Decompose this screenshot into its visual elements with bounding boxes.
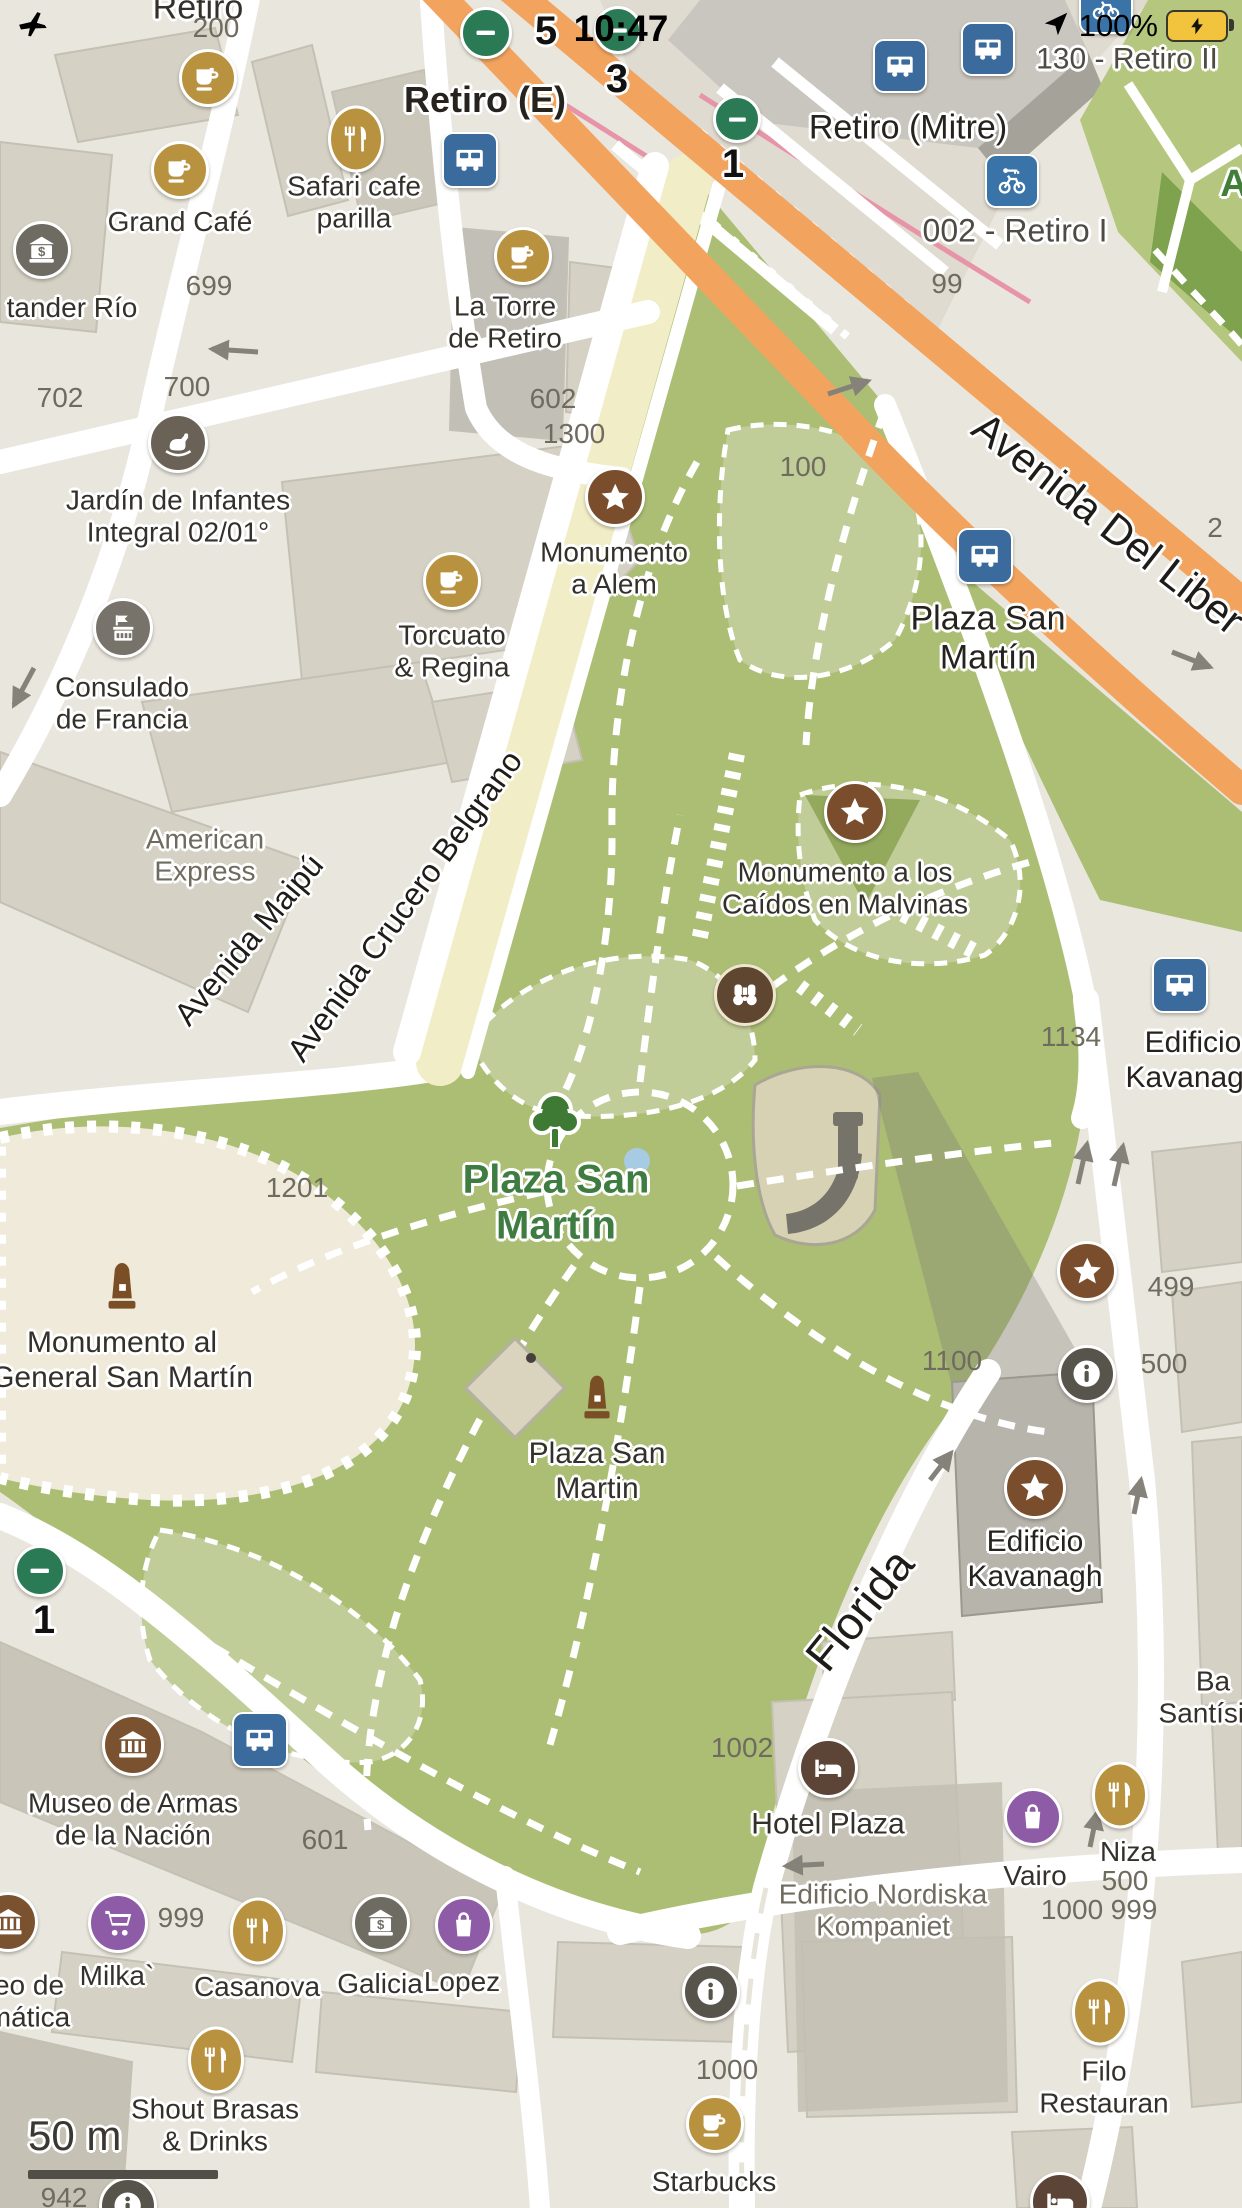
poi-label-monumento-alem[interactable]: Monumentoa Alem: [540, 537, 688, 602]
monument-icon-general-san-martin[interactable]: [91, 1257, 153, 1319]
metro-line-number-1: 1: [722, 141, 744, 187]
housenumber: 602: [530, 383, 577, 415]
housenumber: 2: [1207, 512, 1223, 544]
info-icon[interactable]: [1058, 1345, 1116, 1403]
monument-icon-plaza[interactable]: [568, 1370, 626, 1428]
scale-ruler: 50 m: [28, 2112, 228, 2179]
cafe-icon-torcuato[interactable]: [423, 552, 481, 610]
poi-label-casanova[interactable]: Casanova: [194, 1971, 320, 2003]
cafe-icon-starbucks[interactable]: [686, 2095, 744, 2153]
battery-percent: 100%: [1079, 8, 1158, 44]
shop-bag-icon-vairo[interactable]: [1004, 1788, 1062, 1846]
building-label-nordiska: Edificio NordiskaKompaniet: [779, 1879, 988, 1944]
cafe-icon[interactable]: [179, 49, 237, 107]
info-icon-cut[interactable]: [99, 2177, 157, 2208]
housenumber: 1000: [1041, 1894, 1103, 1926]
hotel-icon-plaza[interactable]: [798, 1738, 858, 1798]
poi-label-consulado[interactable]: Consuladode Francia: [55, 672, 189, 737]
poi-label-filo[interactable]: FiloRestauran: [1039, 2056, 1168, 2121]
bank-icon-santander[interactable]: [13, 221, 71, 279]
bus-stop-icon[interactable]: [232, 1712, 288, 1768]
scale-bar-line: [28, 2170, 218, 2179]
housenumber: 702: [37, 382, 84, 414]
street-label-crucero-belgrano: Avenida Crucero Belgrano: [280, 744, 530, 1069]
housenumber: 1002: [711, 1732, 773, 1764]
museum-icon-cut[interactable]: [0, 1892, 38, 1952]
map-app: $ Retiro2005311Retiro (E)Retiro (Mitre)1…: [0, 0, 1242, 2208]
bike-share-icon-retiro1[interactable]: [985, 154, 1039, 208]
sight-star-icon-kavanagh[interactable]: [1004, 1457, 1066, 1519]
housenumber: 500: [1141, 1348, 1188, 1380]
map-overlay: Retiro2005311Retiro (E)Retiro (Mitre)130…: [0, 0, 1242, 2208]
status-bar: 10:47 100%: [0, 0, 1242, 46]
poi-label-milka[interactable]: Milka`: [80, 1960, 155, 1992]
restaurant-icon-shout[interactable]: [188, 2027, 244, 2094]
station-label-retiro-e[interactable]: Retiro (E): [404, 79, 566, 121]
housenumber: 499: [1148, 1271, 1195, 1303]
bank-icon-galicia[interactable]: [352, 1894, 410, 1952]
poi-label-museo-cut[interactable]: eo demática: [0, 1970, 70, 2035]
housenumber: 601: [302, 1824, 349, 1856]
poi-label-hotel-plaza[interactable]: Hotel Plaza: [751, 1808, 904, 1843]
kindergarten-icon[interactable]: [148, 413, 208, 473]
metro-station-icon-line1[interactable]: [713, 95, 761, 143]
poi-label-kavanagh[interactable]: EdificioKavanagh: [967, 1525, 1102, 1595]
poi-label-safari-cafe[interactable]: Safari cafeparilla: [287, 171, 421, 236]
housenumber: 942: [41, 2182, 88, 2208]
bus-stop-icon[interactable]: [442, 132, 498, 188]
poi-label-malvinas[interactable]: Monumento a losCaídos en Malvinas: [722, 857, 968, 922]
bike-station-label[interactable]: 002 - Retiro I: [923, 212, 1108, 249]
housenumber: 1134: [1041, 1021, 1101, 1053]
housenumber: 500: [1102, 1865, 1149, 1897]
poi-label-santander[interactable]: tander Río: [7, 292, 138, 324]
housenumber: 999: [158, 1902, 205, 1934]
housenumber: 1300: [543, 418, 605, 450]
shop-cart-icon-milka[interactable]: [88, 1893, 148, 1953]
museum-icon-armas[interactable]: [102, 1714, 164, 1776]
housenumber: 1100: [922, 1345, 982, 1377]
poi-label-monumento-gsm[interactable]: Monumento alGeneral San Martín: [0, 1326, 253, 1396]
poi-label-galicia[interactable]: Galicia: [337, 1968, 423, 2000]
restaurant-icon-safari[interactable]: [328, 106, 384, 173]
metro-line-number-3: 3: [606, 56, 628, 102]
metro-station-icon-line1b[interactable]: [14, 1545, 66, 1597]
location-arrow-icon: [1041, 9, 1071, 44]
poi-label-museo-armas[interactable]: Museo de Armasde la Nación: [28, 1788, 238, 1853]
cafe-icon-grand-cafe[interactable]: [151, 141, 209, 199]
housenumber: 99: [931, 268, 962, 300]
poi-label-torcuato-regina[interactable]: Torcuato& Regina: [394, 620, 509, 685]
consulate-icon[interactable]: [93, 598, 153, 658]
poi-label-basilica-cut[interactable]: BaSantísim: [1159, 1666, 1242, 1731]
bus-stop-icon[interactable]: [1152, 957, 1208, 1013]
building-label-american-express: AmericanExpress: [146, 824, 264, 889]
poi-label-niza[interactable]: Niza: [1100, 1836, 1156, 1868]
battery-charging-icon: [1166, 10, 1228, 42]
sight-star-icon-malvinas[interactable]: [824, 781, 886, 843]
poi-label-jardin-infantes[interactable]: Jardín de InfantesIntegral 02/01°: [66, 485, 290, 550]
label-cut-a: A: [1220, 162, 1242, 206]
bus-stop-icon[interactable]: [957, 528, 1013, 584]
housenumber: 700: [164, 371, 211, 403]
housenumber: 100: [780, 451, 827, 483]
poi-label-plaza-sm-monument[interactable]: Plaza SanMartin: [529, 1437, 666, 1507]
park-label-plaza-san-martin[interactable]: Plaza SanMartín: [463, 1157, 650, 1250]
housenumber: 699: [186, 270, 233, 302]
viewpoint-binoculars-icon[interactable]: [714, 964, 776, 1026]
poi-label-vairo[interactable]: Vairo: [1003, 1860, 1066, 1892]
poi-label-grand-cafe[interactable]: Grand Café: [108, 206, 253, 238]
poi-label-starbucks[interactable]: Starbucks: [652, 2166, 777, 2198]
poi-label-la-torre[interactable]: La Torrede Retiro: [448, 291, 562, 356]
sight-star-icon-alem[interactable]: [585, 467, 645, 527]
housenumber: 999: [1111, 1894, 1158, 1926]
cafe-icon-la-torre[interactable]: [494, 227, 552, 285]
scale-distance-label: 50 m: [28, 2112, 228, 2160]
place-label-plaza-san-martin-ne[interactable]: Plaza SanMartín: [911, 600, 1066, 679]
station-label-retiro-mitre[interactable]: Retiro (Mitre): [809, 108, 1007, 147]
housenumber: 1000: [696, 2054, 758, 2086]
poi-label-lopez[interactable]: Lopez: [424, 1966, 500, 1998]
info-icon[interactable]: [682, 1963, 740, 2021]
hotel-icon-cut[interactable]: [1030, 2172, 1090, 2208]
restaurant-icon-niza[interactable]: [1092, 1762, 1148, 1829]
restaurant-icon-filo[interactable]: [1072, 1979, 1128, 2046]
building-label-kavanagh-ne[interactable]: EdificioKavanagh: [1125, 1026, 1242, 1096]
restaurant-icon-casanova[interactable]: [230, 1898, 286, 1965]
metro-line-number-1b: 1: [33, 1597, 55, 1643]
housenumber: 1201: [266, 1172, 328, 1204]
street-label-florida: Florida: [795, 1539, 925, 1682]
sight-star-icon[interactable]: [1057, 1241, 1117, 1301]
shop-bag-icon-lopez[interactable]: [435, 1896, 493, 1954]
